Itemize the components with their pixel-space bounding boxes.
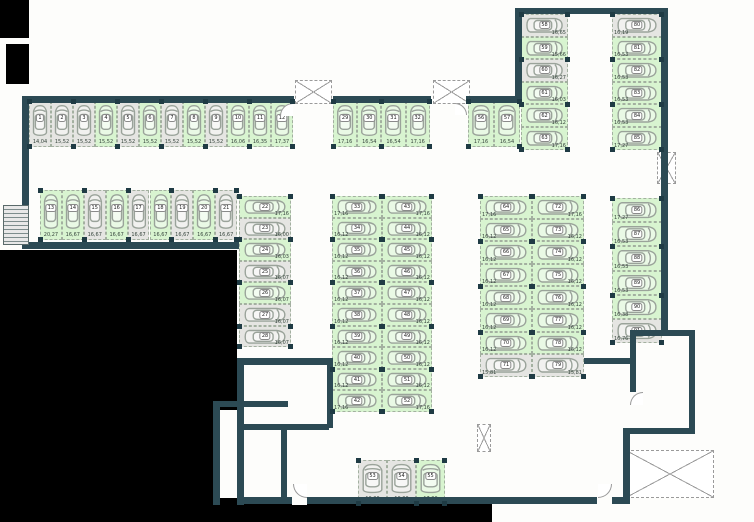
space-number: 23 <box>259 224 270 232</box>
pillar <box>380 280 385 285</box>
pillar <box>565 12 570 17</box>
space-area-label: 16,65 <box>552 30 566 36</box>
wall <box>515 8 668 14</box>
pillar <box>356 501 361 506</box>
parking-space-34: 3416,12 <box>332 218 382 240</box>
space-area-label: 17,16 <box>416 405 430 411</box>
space-area-label: 16,53 <box>614 75 628 81</box>
parking-space-25: 2516,07 <box>239 261 291 283</box>
pillar <box>478 374 483 379</box>
pillar <box>581 194 586 199</box>
space-number: 56 <box>475 114 486 122</box>
pillar <box>247 144 252 149</box>
pillar <box>237 237 242 242</box>
parking-space-15: 1516,67 <box>84 190 106 240</box>
pillar <box>82 188 87 193</box>
space-area-label: 16,12 <box>568 257 582 263</box>
space-area-label: 16,12 <box>416 319 430 325</box>
pillar <box>659 293 664 298</box>
space-area-label: 16,54 <box>362 139 376 145</box>
space-area-label: 16,07 <box>275 297 289 303</box>
space-number: 62 <box>539 112 550 120</box>
space-number: 38 <box>351 311 362 319</box>
space-number: 6 <box>146 114 154 122</box>
space-number: 49 <box>401 332 412 340</box>
parking-space-89: 8916,53 <box>612 271 662 295</box>
parking-space-40: 4016,12 <box>332 347 382 369</box>
space-number: 31 <box>388 114 399 122</box>
space-area-label: 20,27 <box>44 232 58 238</box>
parking-space-10: 1016,06 <box>227 101 249 147</box>
parking-space-65: 6516,12 <box>480 219 532 242</box>
space-area-label: 16,12 <box>568 234 582 240</box>
space-area-label: 16,67 <box>219 232 233 238</box>
pillar <box>330 280 335 285</box>
space-area-label: 16,12 <box>416 275 430 281</box>
pillar <box>478 239 483 244</box>
space-area-label: 16,12 <box>416 232 430 238</box>
space-number: 43 <box>401 203 412 211</box>
parking-space-87: 8716,53 <box>612 222 662 246</box>
pillar <box>659 340 664 345</box>
shaft-marker <box>626 450 714 498</box>
pillar <box>519 57 524 62</box>
wall <box>630 330 636 392</box>
parking-space-50: 5016,12 <box>382 347 432 369</box>
space-area-label: 16,12 <box>334 362 348 368</box>
space-area-label: 16,12 <box>334 232 348 238</box>
parking-space-86: 8617,27 <box>612 198 662 222</box>
wall <box>623 428 630 504</box>
pillar <box>581 374 586 379</box>
parking-space-42: 4217,16 <box>332 390 382 412</box>
door-opening <box>292 497 307 505</box>
space-number: 51 <box>401 376 412 384</box>
parking-space-23: 2316,00 <box>239 218 291 240</box>
pillar <box>466 144 471 149</box>
pillar <box>169 237 174 242</box>
space-area-label: 16,12 <box>482 234 496 240</box>
space-area-label: 16,38 <box>614 312 628 318</box>
pillar <box>427 144 432 149</box>
space-area-label: 16,67 <box>88 232 102 238</box>
parking-space-44: 4416,12 <box>382 218 432 240</box>
pillar <box>581 284 586 289</box>
pillar <box>565 147 570 152</box>
space-area-label: 17,37 <box>275 139 289 145</box>
pillar <box>237 194 242 199</box>
space-area-label: 15,81 <box>482 370 496 376</box>
wall <box>689 330 695 434</box>
space-area-label: 17,16 <box>338 139 352 145</box>
space-number: 72 <box>552 203 563 211</box>
parking-space-45: 4516,12 <box>382 239 432 261</box>
parking-space-7: 715,52 <box>161 101 183 147</box>
space-area-label: 17,16 <box>334 211 348 217</box>
pillar <box>126 237 131 242</box>
pillar <box>234 188 239 193</box>
pillar <box>659 147 664 152</box>
space-number: 9 <box>212 114 220 122</box>
shaft-marker <box>477 424 491 452</box>
parking-space-69: 6916,12 <box>480 309 532 332</box>
parking-space-51: 5116,12 <box>382 369 432 391</box>
space-area-label: 16,53 <box>614 120 628 126</box>
pillar <box>659 12 664 17</box>
parking-space-22: 2217,16 <box>239 196 291 218</box>
parking-space-79: 7915,81 <box>532 354 584 377</box>
parking-space-35: 3516,12 <box>332 239 382 261</box>
pillar <box>380 409 385 414</box>
space-number: 16 <box>111 204 122 212</box>
pillar <box>429 409 434 414</box>
space-area-label: 16,12 <box>334 275 348 281</box>
pillar <box>581 239 586 244</box>
wall <box>466 96 519 103</box>
space-number: 63 <box>539 134 550 142</box>
parking-space-77: 7716,12 <box>532 309 584 332</box>
space-number: 24 <box>259 246 270 254</box>
void-area <box>6 44 29 84</box>
pillar <box>519 12 524 17</box>
space-area-label: 16,67 <box>197 232 211 238</box>
space-number: 70 <box>500 339 511 347</box>
space-area-label: 15,52 <box>143 139 157 145</box>
space-number: 13 <box>45 204 56 212</box>
space-number: 3 <box>80 114 88 122</box>
door-swing <box>455 103 467 115</box>
space-area-label: 17,16 <box>482 212 496 218</box>
pillar <box>115 144 120 149</box>
space-area-label: 16,76 <box>614 336 628 342</box>
space-number: 68 <box>500 294 511 302</box>
space-area-label: 15,52 <box>77 139 91 145</box>
space-area-label: 16,53 <box>614 52 628 58</box>
space-area-label: 17,16 <box>568 212 582 218</box>
wall <box>213 401 288 407</box>
pillar <box>290 144 295 149</box>
parking-space-32: 3217,16 <box>406 101 430 147</box>
pillar <box>379 144 384 149</box>
pillar <box>203 144 208 149</box>
space-area-label: 16,12 <box>334 319 348 325</box>
parking-space-31: 3116,54 <box>381 101 405 147</box>
space-area-label: 17,16 <box>474 139 488 145</box>
pillar <box>330 237 335 242</box>
space-area-label: 16,12 <box>334 297 348 303</box>
pillar <box>530 374 535 379</box>
parking-space-57: 5716,54 <box>494 101 520 147</box>
wall <box>630 428 695 434</box>
parking-space-9: 915,52 <box>205 101 227 147</box>
space-number: 39 <box>351 332 362 340</box>
space-number: 47 <box>401 289 412 297</box>
door-swing <box>630 392 643 405</box>
parking-space-70: 7016,12 <box>480 332 532 355</box>
pillar <box>466 99 471 104</box>
void-area <box>0 0 29 38</box>
pillar <box>356 458 361 463</box>
pillar <box>610 102 615 107</box>
space-number: 64 <box>500 203 511 211</box>
pillar <box>659 57 664 62</box>
space-number: 26 <box>259 289 270 297</box>
pillar <box>288 324 293 329</box>
pillar <box>530 239 535 244</box>
space-number: 7 <box>168 114 176 122</box>
space-area-label: 16,12 <box>568 302 582 308</box>
parking-space-64: 6417,16 <box>480 196 532 219</box>
pillar <box>331 99 336 104</box>
space-number: 33 <box>351 203 362 211</box>
parking-space-19: 1916,67 <box>171 190 193 240</box>
parking-space-43: 4317,16 <box>382 196 432 218</box>
space-number: 30 <box>364 114 375 122</box>
space-number: 53 <box>367 472 378 480</box>
space-area-label: 16,53 <box>614 239 628 245</box>
parking-space-67: 6716,12 <box>480 264 532 287</box>
pillar <box>82 237 87 242</box>
parking-space-39: 3916,12 <box>332 326 382 348</box>
pillar <box>565 102 570 107</box>
parking-space-83: 8316,53 <box>612 82 662 105</box>
space-area-label: 16,67 <box>109 232 123 238</box>
parking-space-30: 3016,54 <box>357 101 381 147</box>
parking-space-82: 8216,53 <box>612 59 662 82</box>
void-area <box>0 250 237 410</box>
parking-space-73: 7316,12 <box>532 219 584 242</box>
pillar <box>610 147 615 152</box>
space-area-label: 16,53 <box>614 97 628 103</box>
space-number: 45 <box>401 246 412 254</box>
space-area-label: 16,54 <box>500 139 514 145</box>
space-area-label: 16,07 <box>275 319 289 325</box>
pillar <box>159 99 164 104</box>
parking-space-76: 7616,12 <box>532 286 584 309</box>
pillar <box>169 188 174 193</box>
pillar <box>581 330 586 335</box>
space-number: 8 <box>190 114 198 122</box>
space-number: 41 <box>351 376 362 384</box>
pillar <box>71 99 76 104</box>
pillar <box>71 144 76 149</box>
pillar <box>565 57 570 62</box>
pillar <box>519 147 524 152</box>
space-number: 89 <box>631 279 642 287</box>
parking-space-28: 2816,07 <box>239 326 291 348</box>
space-number: 5 <box>124 114 132 122</box>
space-number: 35 <box>351 246 362 254</box>
space-number: 17 <box>133 204 144 212</box>
parking-space-59: 5915,66 <box>521 37 568 60</box>
space-area-label: 16,27 <box>552 75 566 81</box>
space-area-label: 16,53 <box>614 288 628 294</box>
space-area-label: 16,00 <box>275 232 289 238</box>
space-area-label: 14,04 <box>33 139 47 145</box>
pillar <box>414 501 419 506</box>
parking-space-78: 7816,12 <box>532 332 584 355</box>
space-number: 37 <box>351 289 362 297</box>
pillar <box>126 188 131 193</box>
parking-space-2: 215,52 <box>51 101 73 147</box>
parking-space-41: 4116,12 <box>332 369 382 391</box>
space-area-label: 15,52 <box>209 139 223 145</box>
parking-space-36: 3616,12 <box>332 261 382 283</box>
pillar <box>519 102 524 107</box>
space-number: 76 <box>552 294 563 302</box>
space-number: 52 <box>401 397 412 405</box>
space-number: 81 <box>631 44 642 52</box>
parking-space-4: 415,52 <box>95 101 117 147</box>
parking-space-58: 5816,65 <box>521 14 568 37</box>
parking-space-21: 2116,67 <box>215 190 237 240</box>
pillar <box>380 237 385 242</box>
space-number: 67 <box>500 271 511 279</box>
space-number: 65 <box>500 226 511 234</box>
pillar <box>429 237 434 242</box>
parking-space-37: 3716,12 <box>332 282 382 304</box>
space-number: 44 <box>401 224 412 232</box>
space-number: 10 <box>232 114 243 122</box>
space-area-label: 15,52 <box>165 139 179 145</box>
wall <box>237 358 333 365</box>
space-area-label: 15,52 <box>121 139 135 145</box>
space-area-label: 16,06 <box>231 139 245 145</box>
space-area-label: 16,12 <box>552 120 566 126</box>
pillar <box>237 280 242 285</box>
space-number: 71 <box>500 361 511 369</box>
parking-space-33: 3317,16 <box>332 196 382 218</box>
space-area-label: 16,12 <box>568 325 582 331</box>
parking-space-3: 315,52 <box>73 101 95 147</box>
parking-space-1: 114,04 <box>29 101 51 147</box>
wall <box>281 424 287 504</box>
parking-space-47: 4716,12 <box>382 282 432 304</box>
space-area-label: 17,16 <box>411 139 425 145</box>
pillar <box>213 237 218 242</box>
pillar <box>429 280 434 285</box>
parking-space-29: 2917,16 <box>333 101 357 147</box>
space-number: 83 <box>631 89 642 97</box>
pillar <box>38 188 43 193</box>
pillar <box>247 99 252 104</box>
pillar <box>659 244 664 249</box>
space-number: 2 <box>58 114 66 122</box>
parking-space-85: 8517,27 <box>612 127 662 150</box>
space-area-label: 15,52 <box>55 139 69 145</box>
parking-space-26: 2616,07 <box>239 282 291 304</box>
space-number: 61 <box>539 89 550 97</box>
space-number: 58 <box>539 21 550 29</box>
space-number: 79 <box>552 361 563 369</box>
space-number: 88 <box>631 254 642 262</box>
pillar <box>610 57 615 62</box>
space-number: 20 <box>199 204 210 212</box>
pillar <box>330 409 335 414</box>
pillar <box>115 99 120 104</box>
stairs-icon <box>3 205 29 245</box>
parking-space-24: 2416,03 <box>239 239 291 261</box>
parking-space-38: 3816,12 <box>332 304 382 326</box>
space-number: 48 <box>401 311 412 319</box>
pillar <box>237 344 242 349</box>
parking-space-52: 5217,16 <box>382 390 432 412</box>
parking-space-71: 7115,81 <box>480 354 532 377</box>
pillar <box>610 293 615 298</box>
pillar <box>610 340 615 345</box>
space-area-label: 17,16 <box>552 143 566 149</box>
space-number: 82 <box>631 66 642 74</box>
space-number: 66 <box>500 248 511 256</box>
parking-space-17: 1716,67 <box>128 190 150 240</box>
wall <box>22 96 294 103</box>
parking-space-61: 6116,03 <box>521 82 568 105</box>
pillar <box>427 99 432 104</box>
space-area-label: 16,12 <box>334 254 348 260</box>
space-number: 46 <box>401 268 412 276</box>
pillar <box>237 324 242 329</box>
space-area-label: 15,52 <box>99 139 113 145</box>
parking-space-75: 7516,12 <box>532 264 584 287</box>
space-number: 57 <box>501 114 512 122</box>
space-area-label: 16,12 <box>334 340 348 346</box>
space-area-label: 15,81 <box>568 370 582 376</box>
pillar <box>288 237 293 242</box>
space-number: 90 <box>631 303 642 311</box>
pillar <box>530 194 535 199</box>
pillar <box>442 501 447 506</box>
parking-space-81: 8116,53 <box>612 37 662 60</box>
pillar <box>530 330 535 335</box>
space-area-label: 16,35 <box>253 139 267 145</box>
parking-space-20: 2016,67 <box>193 190 215 240</box>
space-area-label: 16,12 <box>482 279 496 285</box>
pillar <box>610 244 615 249</box>
pillar <box>330 324 335 329</box>
space-area-label: 17,16 <box>334 405 348 411</box>
parking-space-68: 6816,12 <box>480 286 532 309</box>
pillar <box>380 324 385 329</box>
space-number: 59 <box>539 44 550 52</box>
pillar <box>27 144 32 149</box>
parking-space-66: 6616,12 <box>480 241 532 264</box>
space-area-label: 17,27 <box>614 215 628 221</box>
pillar <box>478 194 483 199</box>
space-area-label: 16,12 <box>416 254 430 260</box>
pillar <box>288 280 293 285</box>
space-area-label: 16,03 <box>552 97 566 103</box>
parking-space-6: 615,52 <box>139 101 161 147</box>
pillar <box>213 188 218 193</box>
pillar <box>442 458 447 463</box>
pillar <box>330 367 335 372</box>
space-number: 22 <box>259 203 270 211</box>
space-area-label: 16,53 <box>614 264 628 270</box>
parking-space-90: 9016,38 <box>612 295 662 319</box>
space-number: 74 <box>552 248 563 256</box>
space-area-label: 17,27 <box>614 143 628 149</box>
space-area-label: 16,07 <box>275 340 289 346</box>
space-number: 28 <box>259 332 270 340</box>
space-number: 60 <box>539 66 550 74</box>
space-number: 34 <box>351 224 362 232</box>
parking-space-13: 1320,27 <box>40 190 62 240</box>
space-area-label: 15,66 <box>552 52 566 58</box>
space-number: 29 <box>339 114 350 122</box>
space-number: 42 <box>351 397 362 405</box>
wall <box>213 401 220 505</box>
space-number: 21 <box>220 204 231 212</box>
